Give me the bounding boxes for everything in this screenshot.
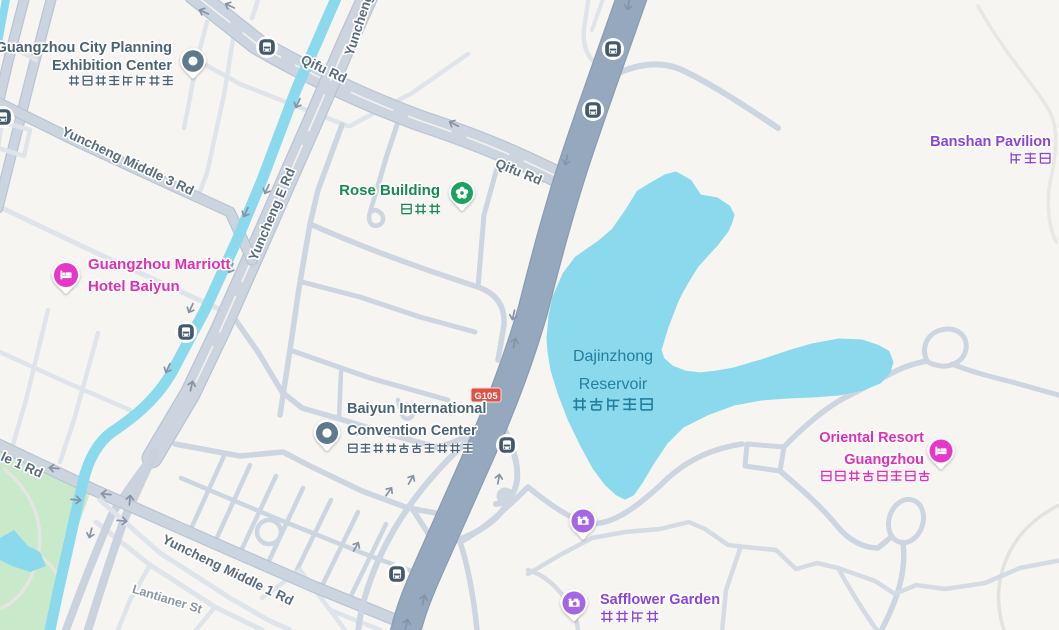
svg-text:Baiyun International: Baiyun International [347,401,486,417]
svg-text:Guangzhou: Guangzhou [844,452,924,468]
svg-text:Guangzhou City Planning: Guangzhou City Planning [0,40,172,56]
svg-text:Guangzhou Marriott: Guangzhou Marriott [88,256,231,273]
svg-text:Oriental Resort: Oriental Resort [819,430,924,446]
svg-text:Safflower Garden: Safflower Garden [600,592,720,608]
svg-text:Banshan Pavilion: Banshan Pavilion [930,134,1051,150]
svg-text:Exhibition Center: Exhibition Center [52,58,172,74]
svg-text:Reservoir: Reservoir [579,376,648,393]
svg-text:Convention Center: Convention Center [347,423,477,439]
svg-text:Rose Building: Rose Building [339,182,440,199]
svg-text:Dajinzhong: Dajinzhong [573,348,653,365]
svg-text:Hotel Baiyun: Hotel Baiyun [88,278,180,295]
